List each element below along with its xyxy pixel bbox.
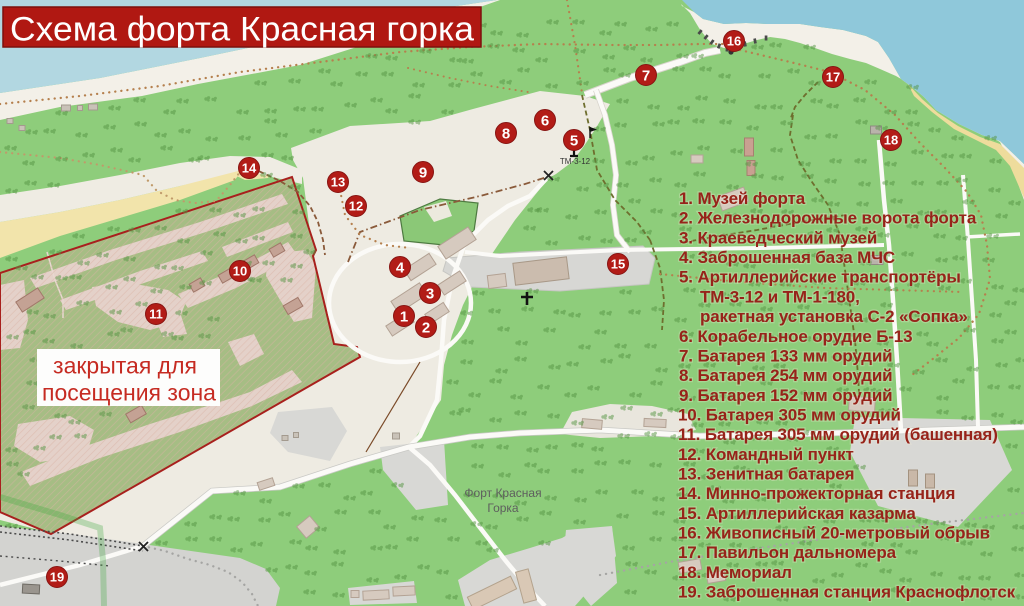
svg-text:ТМ-3-12: ТМ-3-12 xyxy=(560,157,591,166)
svg-text:9. Батарея 152 мм орудий: 9. Батарея 152 мм орудий xyxy=(679,386,892,405)
svg-text:14. Минно-прожекторная станция: 14. Минно-прожекторная станция xyxy=(678,484,955,503)
svg-text:12: 12 xyxy=(349,199,363,214)
svg-text:13: 13 xyxy=(331,175,345,190)
svg-text:2. Железнодорожные ворота форт: 2. Железнодорожные ворота форта xyxy=(679,209,977,228)
svg-text:8. Батарея 254 мм орудий: 8. Батарея 254 мм орудий xyxy=(679,366,892,385)
svg-text:6: 6 xyxy=(541,112,549,129)
svg-text:13. Зенитная батарея: 13. Зенитная батарея xyxy=(678,465,854,484)
svg-text:4: 4 xyxy=(396,259,405,276)
svg-text:18: 18 xyxy=(884,133,898,148)
svg-text:16. Живописный 20-метровый обр: 16. Живописный 20-метровый обрыв xyxy=(678,524,990,543)
svg-text:15: 15 xyxy=(611,257,625,272)
svg-text:5: 5 xyxy=(570,132,578,149)
svg-text:14: 14 xyxy=(242,161,257,176)
svg-text:5. Артиллерийские транспортёры: 5. Артиллерийские транспортёры xyxy=(679,268,961,287)
svg-text:3. Краеведческий музей: 3. Краеведческий музей xyxy=(679,228,877,247)
svg-text:19. Заброшенная станция Красно: 19. Заброшенная станция Краснофлотск xyxy=(678,583,1016,602)
svg-text:8: 8 xyxy=(502,125,510,142)
svg-text:18. Мемориал: 18. Мемориал xyxy=(678,563,792,582)
svg-text:6. Корабельное орудие Б-13: 6. Корабельное орудие Б-13 xyxy=(679,327,912,346)
svg-text:7: 7 xyxy=(642,67,650,84)
svg-text:16: 16 xyxy=(727,34,741,49)
svg-text:15. Артиллерийская казарма: 15. Артиллерийская казарма xyxy=(678,504,916,523)
svg-text:Форт Красная: Форт Красная xyxy=(464,486,541,500)
svg-text:10: 10 xyxy=(233,264,247,279)
svg-text:4. Заброшенная база МЧС: 4. Заброшенная база МЧС xyxy=(679,248,895,267)
svg-text:Горка: Горка xyxy=(487,501,519,515)
svg-text:11: 11 xyxy=(149,307,163,322)
svg-text:посещения зона: посещения зона xyxy=(42,380,216,406)
svg-text:Схема форта Красная горка: Схема форта Красная горка xyxy=(10,11,474,49)
svg-text:3: 3 xyxy=(426,285,434,302)
svg-text:12. Командный пункт: 12. Командный пункт xyxy=(678,445,854,464)
svg-text:17: 17 xyxy=(826,70,840,85)
svg-text:17. Павильон дальномера: 17. Павильон дальномера xyxy=(678,543,897,562)
svg-text:19: 19 xyxy=(50,570,64,585)
svg-text:9: 9 xyxy=(419,164,427,181)
svg-text:10. Батарея 305 мм орудий: 10. Батарея 305 мм орудий xyxy=(678,406,901,425)
svg-text:1. Музей форта: 1. Музей форта xyxy=(679,189,806,208)
svg-text:ракетная установка С-2 «Сопка»: ракетная установка С-2 «Сопка» xyxy=(700,307,968,326)
svg-text:7. Батарея 133 мм орудий: 7. Батарея 133 мм орудий xyxy=(679,346,892,365)
svg-text:11. Батарея 305 мм орудий (баш: 11. Батарея 305 мм орудий (башенная) xyxy=(678,425,998,444)
svg-text:ТМ-3-12 и ТМ-1-180,: ТМ-3-12 и ТМ-1-180, xyxy=(700,287,860,306)
svg-text:закрытая для: закрытая для xyxy=(53,353,197,379)
svg-text:1: 1 xyxy=(400,308,408,325)
svg-text:2: 2 xyxy=(422,319,430,336)
